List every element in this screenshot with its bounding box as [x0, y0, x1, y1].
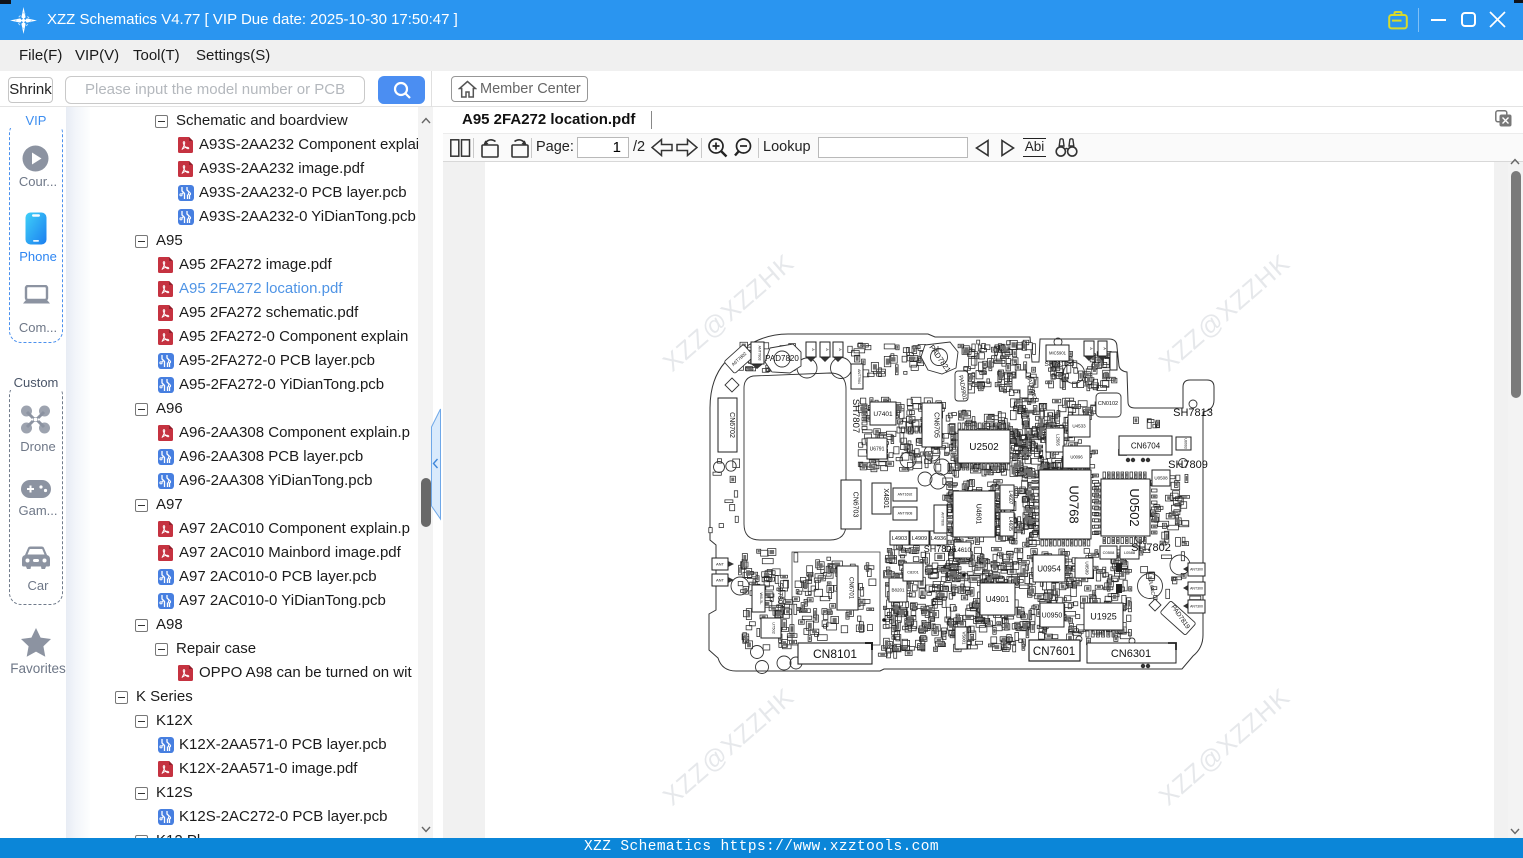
svg-text:C0508: C0508 [1103, 550, 1116, 555]
svg-text:C8201: C8201 [907, 569, 920, 574]
svg-text:B8201: B8201 [891, 588, 905, 593]
svg-text:XZZ@XZZHK: XZZ@XZZHK [1154, 683, 1296, 811]
svg-text:ANT7808: ANT7808 [898, 512, 913, 516]
svg-text:U7401: U7401 [873, 411, 893, 418]
svg-text:W6L5L: W6L5L [759, 592, 763, 604]
svg-text:U7502: U7502 [771, 622, 776, 635]
svg-text:U4601: U4601 [974, 504, 981, 525]
svg-text:CN6705: CN6705 [932, 412, 939, 438]
svg-text:CN6704: CN6704 [1131, 441, 1161, 450]
svg-text:ANT: ANT [716, 577, 725, 582]
svg-text:U6791: U6791 [870, 446, 885, 452]
svg-text:ANT300: ANT300 [1190, 605, 1203, 609]
svg-text:U4901: U4901 [986, 595, 1010, 604]
svg-text:ANT: ANT [716, 561, 725, 566]
svg-text:ANT1692: ANT1692 [898, 493, 913, 497]
svg-text:SH7807: SH7807 [850, 399, 861, 433]
svg-text:L4605: L4605 [1007, 517, 1013, 531]
svg-text:X4801: X4801 [882, 488, 889, 508]
svg-text:U0096: U0096 [1070, 454, 1083, 459]
svg-text:CN0102: CN0102 [1098, 401, 1118, 407]
svg-text:ANT7806: ANT7806 [941, 512, 945, 526]
svg-text:SH7811: SH7811 [1044, 361, 1067, 368]
svg-text:CN8101: CN8101 [813, 647, 857, 661]
svg-text:XZZ@XZZHK: XZZ@XZZHK [658, 683, 800, 811]
svg-text:SH7813: SH7813 [1173, 407, 1213, 419]
svg-text:SH7802: SH7802 [1131, 542, 1171, 554]
svg-text:CN6703: CN6703 [851, 492, 858, 518]
svg-text:U0508: U0508 [1154, 476, 1168, 481]
svg-text:U0954: U0954 [1037, 564, 1061, 573]
svg-text:SH7806: SH7806 [924, 544, 957, 554]
svg-text:ANT300: ANT300 [1190, 587, 1203, 591]
svg-text:L4607: L4607 [1007, 491, 1013, 505]
svg-text:L4903: L4903 [892, 536, 907, 542]
svg-text:ANT300: ANT300 [1190, 568, 1203, 572]
svg-text:CN7601: CN7601 [1033, 646, 1075, 658]
svg-text:U0509: U0509 [1085, 561, 1090, 575]
svg-text:ANT7803: ANT7803 [758, 346, 762, 361]
svg-text:CN6701: CN6701 [848, 577, 854, 600]
svg-text:SH7809: SH7809 [1168, 459, 1208, 471]
svg-text:L4909: L4909 [912, 536, 927, 542]
svg-text:U4533: U4533 [1072, 424, 1086, 429]
svg-text:L2505: L2505 [1055, 434, 1060, 446]
svg-text:MIC5901: MIC5901 [1049, 350, 1067, 355]
svg-text:U2502: U2502 [969, 442, 999, 453]
svg-text:XZZ@XZZHK: XZZ@XZZHK [1154, 249, 1296, 377]
svg-text:ANT7904: ANT7904 [857, 369, 861, 384]
svg-text:CN6702: CN6702 [728, 412, 735, 438]
svg-text:PAD7820: PAD7820 [765, 354, 799, 363]
svg-text:U0950: U0950 [1042, 612, 1063, 619]
svg-text:U0768: U0768 [1067, 485, 1082, 523]
svg-text:U0502: U0502 [1127, 488, 1142, 526]
svg-text:CN6301: CN6301 [1111, 648, 1151, 660]
svg-text:U0903: U0903 [1184, 438, 1188, 448]
svg-text:U1925: U1925 [1090, 612, 1117, 622]
svg-text:V5001: V5001 [962, 631, 967, 645]
svg-text:L4936: L4936 [931, 536, 946, 542]
svg-text:L4610: L4610 [954, 548, 971, 554]
svg-text:SH7801: SH7801 [776, 582, 783, 607]
